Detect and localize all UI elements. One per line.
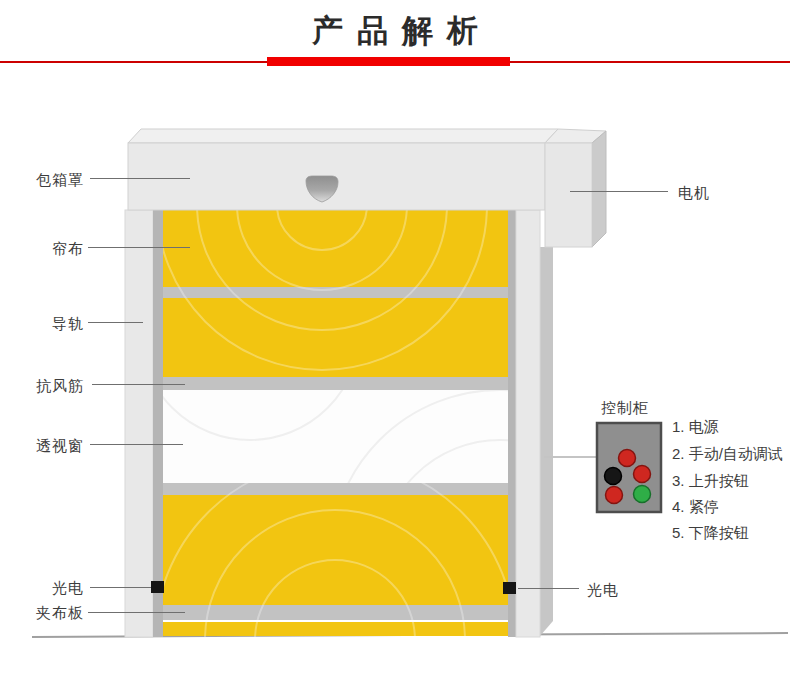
leader-window: [90, 444, 183, 445]
panel-strip-3: [163, 483, 508, 495]
rail-side-face: [540, 247, 553, 636]
motor-front: [545, 143, 592, 247]
motor-side-face: [592, 131, 606, 247]
label-clamp-plate: 夹布板: [0, 604, 84, 623]
leader-clamp-plate: [88, 612, 185, 613]
label-wind-rib: 抗风筋: [0, 377, 84, 396]
door-diagram: [0, 0, 790, 683]
clamp-plate-strip: [163, 605, 508, 620]
control-button-estop: [606, 487, 623, 504]
leader-photo-right: [518, 588, 579, 589]
left-rail: [125, 210, 153, 637]
photo-sensor-left: [151, 581, 164, 593]
right-rail: [516, 210, 540, 637]
right-track: [508, 210, 516, 637]
control-button-mode: [605, 468, 622, 485]
leader-hood: [90, 178, 190, 179]
left-track: [153, 210, 163, 637]
control-button-up: [634, 466, 651, 483]
label-photo-left: 光电: [0, 579, 84, 598]
hood-front: [128, 143, 545, 210]
control-button-power: [619, 450, 636, 467]
label-motor: 电机: [678, 184, 710, 203]
label-photo-right: 光电: [587, 581, 619, 600]
label-hood: 包箱罩: [0, 171, 84, 190]
leader-curtain: [88, 247, 190, 248]
label-rail: 导轨: [0, 315, 84, 334]
leader-photo-left: [90, 587, 151, 588]
leader-rail: [88, 322, 143, 323]
curtain-panel-2: [163, 298, 508, 377]
legend-item-up: 3. 上升按钮: [672, 472, 749, 491]
legend-item-estop: 4. 紧停: [672, 498, 719, 517]
label-control-box: 控制柜: [601, 399, 649, 418]
leader-wind-rib: [92, 384, 185, 385]
wind-rib-strip: [163, 377, 508, 390]
viewing-window: [163, 390, 508, 483]
photo-sensor-right: [503, 582, 516, 594]
leader-motor: [570, 191, 668, 192]
product-analysis-page: 产品解析: [0, 0, 790, 683]
legend-item-mode: 2. 手动/自动调试: [672, 445, 783, 464]
curtain-panel-4: [163, 622, 508, 636]
label-curtain: 帘布: [0, 240, 84, 259]
hood-top-face: [128, 129, 558, 143]
control-button-down: [634, 486, 651, 503]
label-window: 透视窗: [0, 437, 84, 456]
legend-item-down: 5. 下降按钮: [672, 524, 749, 543]
legend-item-power: 1. 电源: [672, 418, 719, 437]
